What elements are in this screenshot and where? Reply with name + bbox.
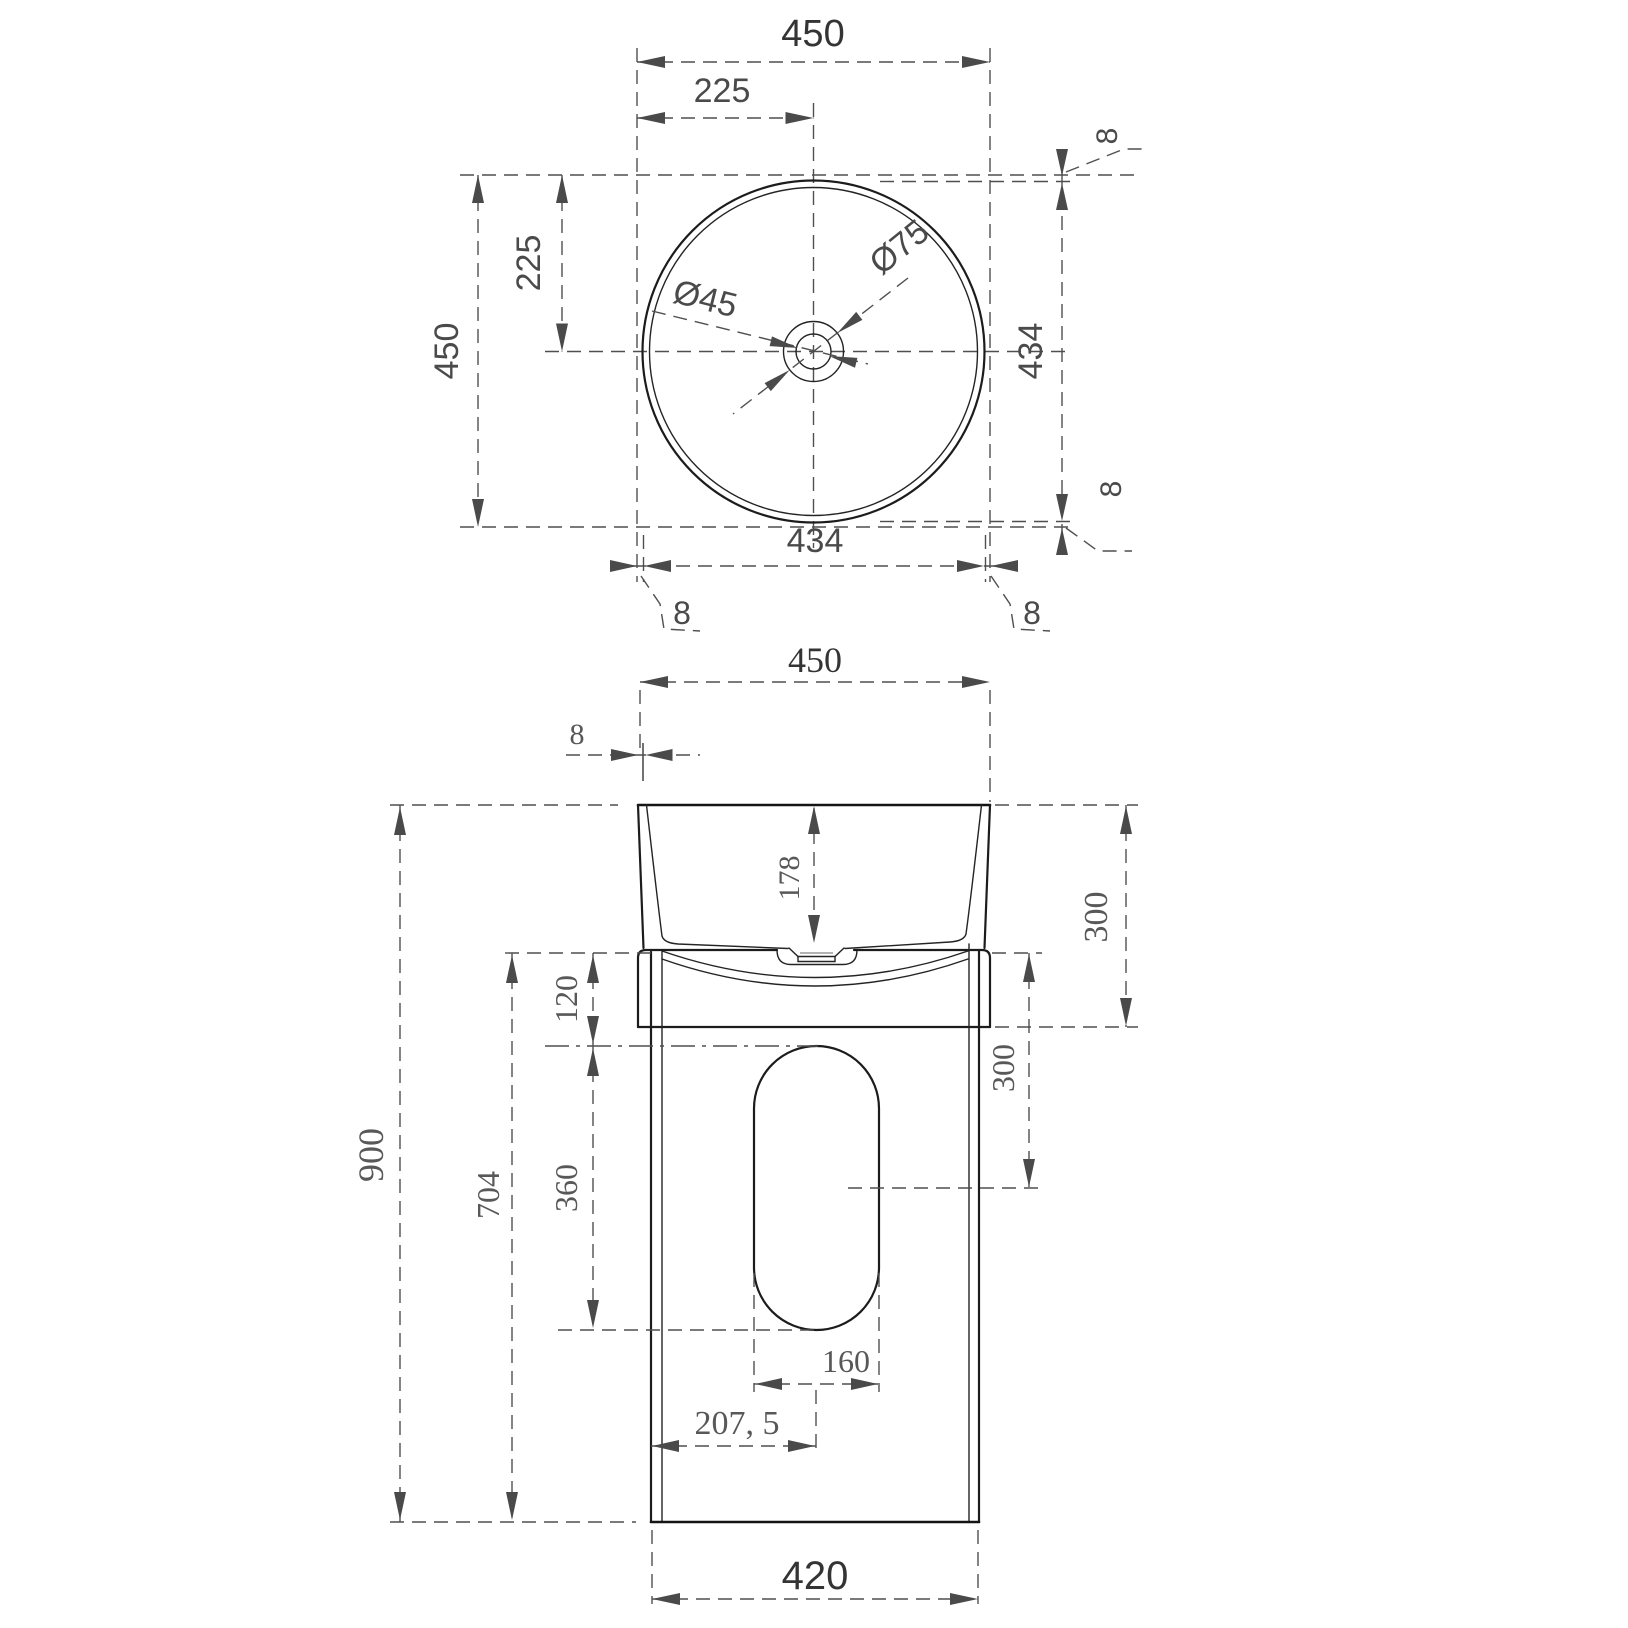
dim-cutout-height: 360 bbox=[548, 1046, 818, 1330]
diameter-45-leader bbox=[652, 311, 868, 364]
dim-label-offset-left: 8 bbox=[673, 595, 691, 631]
top-view: 450 225 450 225 bbox=[428, 13, 1148, 631]
dim-label-inner-width: 434 bbox=[787, 522, 844, 560]
basin-right-outer-wall bbox=[985, 805, 991, 948]
leader-offset-bottom-left bbox=[641, 576, 700, 631]
drawing-canvas: 450 225 450 225 bbox=[0, 0, 1628, 1628]
dim-label-offset-bottom: 8 bbox=[1095, 481, 1128, 498]
dim-label-cutout-offset: 300 bbox=[985, 1044, 1021, 1092]
basin-left-inner-wall bbox=[647, 805, 789, 949]
dim-label-basin-depth: 178 bbox=[773, 856, 806, 901]
bowl-underside-curve-2 bbox=[662, 959, 968, 986]
basin-right-inner-wall bbox=[845, 805, 982, 949]
dim-label-skirt-height: 120 bbox=[548, 975, 584, 1023]
technical-drawing: 450 225 450 225 bbox=[0, 0, 1628, 1628]
dim-top-overall-width: 450 bbox=[637, 13, 990, 68]
dim-front-wall-thickness: 8 bbox=[566, 718, 700, 781]
dim-label-inner-depth: 434 bbox=[1012, 323, 1050, 380]
front-view: 450 8 bbox=[351, 640, 1138, 1605]
dim-left-half-depth: 225 bbox=[510, 175, 568, 352]
dim-label-top-width: 450 bbox=[781, 13, 844, 55]
dim-base-width: 420 bbox=[652, 1530, 978, 1605]
dim-label-cutout-height: 360 bbox=[548, 1164, 584, 1212]
flange-left bbox=[638, 950, 777, 1027]
dim-top-half-width: 225 bbox=[637, 72, 814, 124]
dim-label-center-offset: 207, 5 bbox=[695, 1405, 780, 1442]
dim-label-pedestal-height: 704 bbox=[470, 1171, 506, 1219]
dim-label-front-width: 450 bbox=[788, 640, 842, 680]
leader-offset-bottom-right bbox=[1066, 528, 1132, 551]
dim-right-inner-depth: 434 8 8 bbox=[1012, 128, 1148, 555]
dim-front-top-width: 450 bbox=[640, 640, 990, 802]
dim-label-left-depth: 450 bbox=[428, 323, 466, 380]
basin-left-outer-wall bbox=[638, 805, 644, 948]
dim-label-cutout-width: 160 bbox=[822, 1343, 870, 1379]
dim-label-left-half-depth: 225 bbox=[510, 235, 548, 292]
dim-label-base-width: 420 bbox=[782, 1554, 849, 1598]
dim-cutout-top-offset: 300 bbox=[848, 953, 1042, 1188]
diameter-75-leader bbox=[733, 278, 908, 414]
dim-cutout-width: 160 bbox=[754, 1273, 879, 1392]
dim-label-basin-height: 300 bbox=[1078, 892, 1115, 943]
dim-left-overall-depth: 450 bbox=[428, 175, 484, 527]
dim-cutout-center-offset: 207, 5 bbox=[651, 1390, 816, 1452]
leader-offset-bottom-right2 bbox=[991, 576, 1050, 631]
dim-label-overall-height: 900 bbox=[351, 1128, 391, 1182]
dim-label-wall-thickness: 8 bbox=[570, 718, 585, 751]
dim-label-offset-top: 8 bbox=[1091, 128, 1124, 145]
dim-label-top-half-width: 225 bbox=[694, 72, 751, 110]
dim-bottom-inner-width: 434 8 8 bbox=[610, 522, 1050, 631]
drain-boss bbox=[777, 950, 857, 965]
dim-basin-inner-depth: 178 bbox=[773, 806, 820, 943]
drain-diameter-callouts: Ø45 Ø75 bbox=[652, 212, 936, 414]
leader-offset-top-right bbox=[1066, 149, 1148, 172]
dim-label-offset-right: 8 bbox=[1023, 595, 1041, 631]
dim-basin-height: 300 bbox=[995, 805, 1138, 1027]
dim-pedestal-height: 704 bbox=[470, 953, 518, 1522]
